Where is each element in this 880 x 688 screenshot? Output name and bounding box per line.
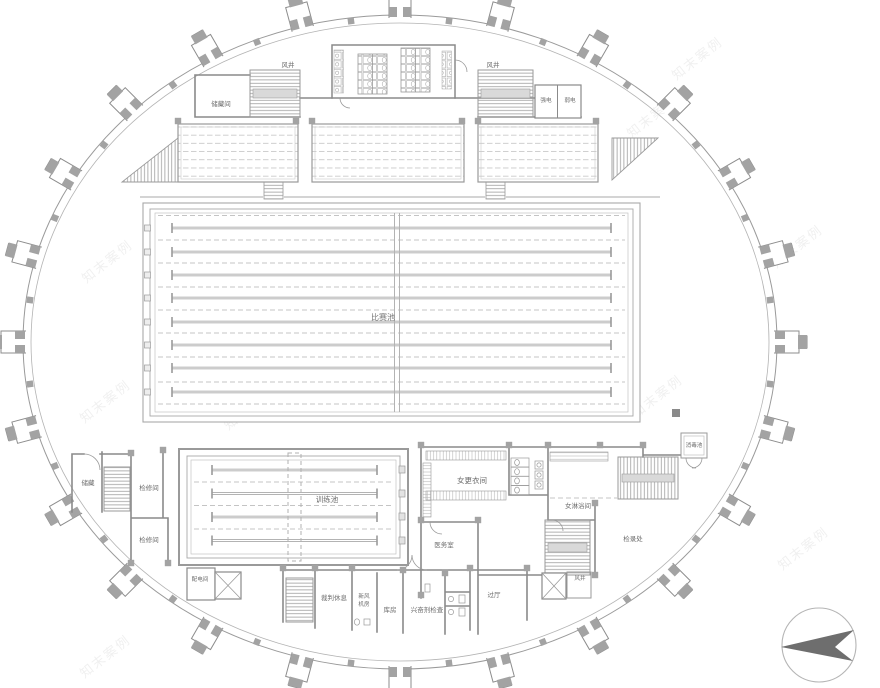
deck-marker bbox=[672, 409, 680, 417]
room-label-maintenance-upper: 检修间 bbox=[139, 483, 159, 492]
room-label-maintenance-lower: 检修间 bbox=[139, 535, 159, 544]
watermark-text: 知末案例 bbox=[77, 377, 134, 427]
grandstands bbox=[122, 124, 660, 199]
room-label-women-shower: 女淋浴间 bbox=[565, 501, 591, 510]
lockers bbox=[426, 451, 506, 460]
grandstand-left bbox=[178, 124, 298, 182]
toilet-block-top bbox=[332, 45, 455, 98]
lockers bbox=[423, 463, 431, 517]
room-label-vent-shaft-top-left: 风井 bbox=[282, 60, 296, 69]
stair-top-right-landing bbox=[481, 89, 530, 98]
watermark-text: 知末案例 bbox=[79, 237, 136, 287]
disinfection-pool: 消毒池 bbox=[681, 433, 707, 458]
grandstand-center bbox=[312, 124, 464, 182]
stair-top-left-landing bbox=[253, 89, 297, 98]
room-label-fresh-air-line2: 机房 bbox=[358, 600, 370, 608]
top-service-band bbox=[195, 45, 581, 118]
watermark-text: 知末案例 bbox=[669, 34, 726, 84]
lockers bbox=[426, 491, 506, 500]
medical-fixture bbox=[425, 584, 430, 592]
compass bbox=[781, 608, 856, 682]
stair-stand-left bbox=[122, 138, 178, 182]
room-label-vent-shaft-bottom: 风井 bbox=[574, 574, 586, 582]
floor-plan-drawing: 知末案例 知末案例 知末案例 知末案例 知末案例 知末案例 知末案例 知末案例 … bbox=[0, 0, 880, 688]
shower-fixtures bbox=[535, 461, 543, 489]
stair-south bbox=[286, 578, 313, 622]
room-label-medical: 医务室 bbox=[434, 540, 454, 549]
changing-block: 消毒池 bbox=[421, 433, 707, 634]
room-label-checkin: 检录处 bbox=[623, 534, 643, 543]
competition-pool-label: 比赛池 bbox=[371, 312, 395, 322]
training-pool-label: 训练池 bbox=[316, 494, 339, 504]
room-label-fresh-air-line1: 新风 bbox=[358, 592, 370, 600]
training-pool: 训练池 bbox=[179, 449, 408, 565]
room-label-power-distribution: 配电间 bbox=[192, 575, 209, 583]
disinfection-pool-label: 消毒池 bbox=[686, 441, 703, 449]
watermark-text: 知末案例 bbox=[77, 632, 134, 682]
room-label-vestibule: 过厅 bbox=[488, 590, 502, 599]
competition-pool: 比赛池 bbox=[143, 203, 680, 422]
stand-ladder-left bbox=[264, 182, 283, 199]
grandstand-right bbox=[478, 124, 598, 182]
bottom-left-rooms bbox=[72, 450, 168, 565]
plant-room-fixtures bbox=[354, 619, 370, 625]
stair-east-landing bbox=[622, 474, 674, 482]
watermark-text: 知末案例 bbox=[775, 524, 832, 574]
stand-ladder-right bbox=[486, 182, 505, 199]
room-label-vent-shaft-top-right: 风井 bbox=[487, 60, 501, 69]
bottom-center-rooms bbox=[187, 555, 591, 634]
stair-central-landing bbox=[548, 543, 587, 552]
room-label-storage-left: 储藏 bbox=[82, 478, 96, 487]
stair-stand-right bbox=[612, 138, 658, 180]
elevator-west bbox=[187, 568, 241, 600]
room-label-strong-electric: 强电 bbox=[540, 96, 552, 104]
shower-bench bbox=[550, 452, 608, 461]
room-label-storeroom: 库房 bbox=[384, 605, 397, 614]
floor-plan-canvas: 知末案例 知末案例 知末案例 知末案例 知末案例 知末案例 知末案例 知末案例 … bbox=[0, 0, 880, 688]
stair-southwest bbox=[104, 467, 130, 511]
room-label-women-changing: 女更衣间 bbox=[457, 475, 487, 485]
room-label-weak-electric: 弱电 bbox=[564, 96, 576, 104]
room-label-referee-lounge: 裁判休息 bbox=[321, 593, 348, 602]
room-label-storage-top-left: 储藏间 bbox=[211, 99, 231, 108]
toilet-stalls bbox=[511, 458, 529, 495]
room-label-doping-control: 兴奋剂检查 bbox=[411, 605, 444, 614]
